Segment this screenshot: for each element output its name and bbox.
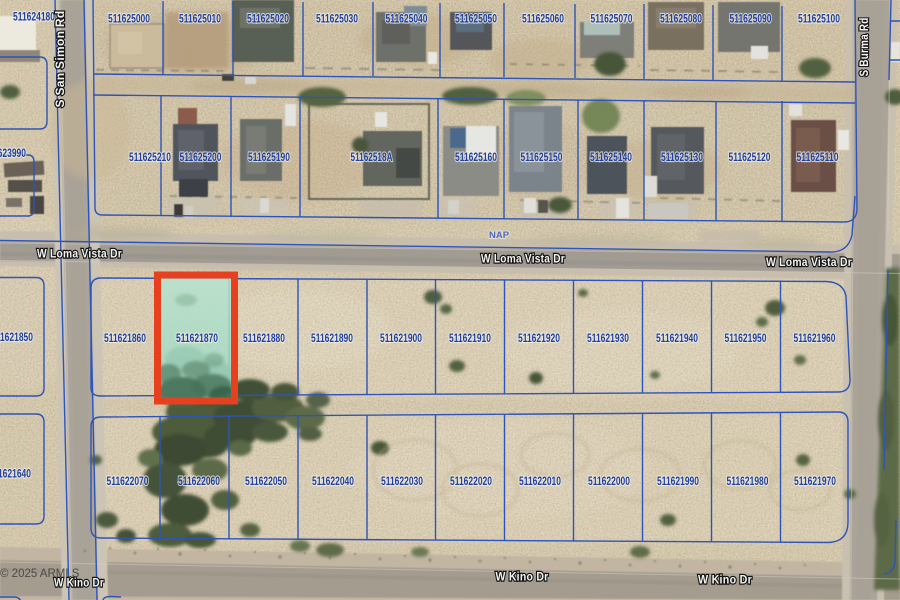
svg-text:511625060: 511625060 (522, 14, 564, 26)
svg-text:511621890: 511621890 (311, 333, 353, 345)
svg-text:511622000: 511622000 (588, 476, 630, 488)
svg-text:511625200: 511625200 (180, 152, 222, 164)
svg-text:511621970: 511621970 (794, 476, 836, 488)
svg-text:W Loma Vista Dr: W Loma Vista Dr (481, 254, 565, 266)
svg-text:511625090: 511625090 (730, 14, 772, 26)
svg-text:511625080: 511625080 (660, 14, 702, 26)
svg-text:511622040: 511622040 (312, 476, 354, 488)
svg-text:511625140: 511625140 (590, 152, 632, 164)
svg-text:511621860: 511621860 (104, 333, 146, 345)
svg-text:511625040: 511625040 (386, 14, 428, 26)
svg-text:511625160: 511625160 (455, 152, 497, 164)
svg-text:© 2025 ARMLS: © 2025 ARMLS (0, 568, 80, 580)
svg-text:51162518A: 51162518A (351, 152, 393, 164)
svg-text:511625100: 511625100 (798, 14, 840, 26)
svg-text:511625030: 511625030 (316, 14, 358, 26)
svg-text:511621880: 511621880 (243, 333, 285, 345)
svg-text:511625050: 511625050 (455, 14, 497, 26)
svg-text:511621910: 511621910 (449, 333, 491, 345)
svg-text:511622010: 511622010 (519, 476, 561, 488)
svg-text:511624180: 511624180 (13, 12, 55, 24)
svg-text:511621850: 511621850 (0, 332, 33, 344)
svg-text:511623990: 511623990 (0, 148, 26, 160)
svg-text:511622030: 511622030 (381, 476, 423, 488)
svg-text:S San Simon Rd: S San Simon Rd (55, 11, 67, 108)
svg-text:511622020: 511622020 (450, 476, 492, 488)
svg-text:511625010: 511625010 (179, 14, 221, 26)
svg-text:511625020: 511625020 (247, 14, 289, 26)
svg-text:511621980: 511621980 (727, 476, 769, 488)
svg-text:S Burma Rd: S Burma Rd (859, 18, 871, 77)
svg-text:511622070: 511622070 (107, 476, 149, 488)
svg-text:511622060: 511622060 (178, 476, 220, 488)
svg-text:511625110: 511625110 (797, 152, 839, 164)
svg-text:511625000: 511625000 (108, 14, 150, 26)
svg-text:W Kino Dr: W Kino Dr (496, 572, 549, 584)
svg-text:511621990: 511621990 (657, 476, 699, 488)
svg-text:511625120: 511625120 (729, 152, 771, 164)
svg-text:511621960: 511621960 (794, 333, 836, 345)
svg-text:W Loma Vista Dr: W Loma Vista Dr (37, 249, 122, 261)
svg-text:511621930: 511621930 (587, 333, 629, 345)
svg-text:NAP: NAP (489, 230, 510, 241)
svg-text:511625130: 511625130 (661, 152, 703, 164)
svg-text:511622050: 511622050 (245, 476, 287, 488)
svg-text:W Loma Vista Dr: W Loma Vista Dr (766, 257, 852, 269)
svg-text:511621920: 511621920 (518, 333, 560, 345)
svg-text:W Kino Dr: W Kino Dr (698, 575, 752, 587)
svg-text:511621870: 511621870 (176, 333, 218, 345)
svg-text:511621950: 511621950 (725, 333, 767, 345)
svg-text:511625070: 511625070 (591, 14, 633, 26)
svg-text:511621640: 511621640 (0, 469, 31, 481)
svg-text:511625210: 511625210 (129, 152, 171, 164)
svg-text:511621940: 511621940 (656, 333, 698, 345)
svg-text:511625190: 511625190 (248, 152, 290, 164)
svg-text:511625150: 511625150 (521, 152, 563, 164)
svg-text:511621900: 511621900 (380, 333, 422, 345)
